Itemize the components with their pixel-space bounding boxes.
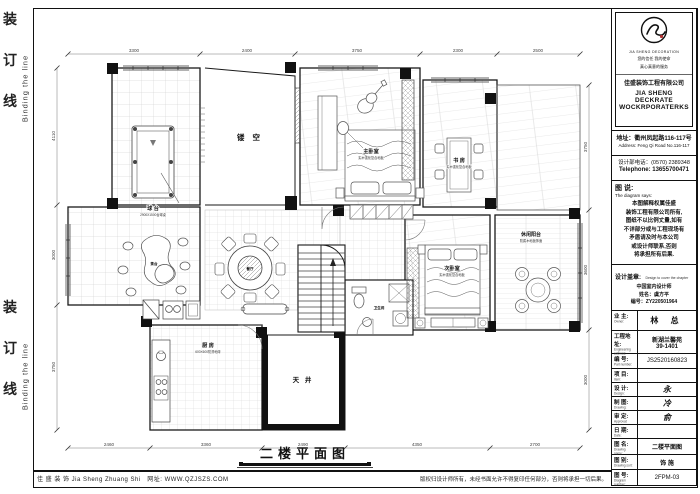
stairs [298, 245, 345, 332]
owner-value: 林 总 [638, 311, 696, 330]
address-en: Address: Feng Qi Road No.116-117 [612, 143, 696, 148]
svg-text:2300: 2300 [453, 48, 464, 53]
binding-label-en: Binding the line [21, 19, 30, 159]
item-value [638, 369, 696, 382]
address-cn: 地址：衢州凤起路116-117号 [612, 133, 696, 142]
project-address-value: 新湖兰馨苑 [652, 335, 682, 344]
room-label-courtyard: 天 井 [293, 375, 314, 384]
title-underline [243, 463, 367, 466]
row-drawing-name: 图 名:Drawing name: 二楼平面图 [612, 439, 696, 455]
room-label-void: 镂 空 [237, 132, 263, 142]
svg-text:2460: 2460 [104, 442, 115, 447]
svg-text:600X600防滑地砖: 600X600防滑地砖 [195, 349, 221, 354]
row-project-address: 工程地址:Engineering address: 新湖兰馨苑 39-1401 [612, 331, 696, 354]
room-label-study: 书 房 [453, 156, 465, 164]
seal-title: 设计盖章: [615, 275, 641, 281]
svg-text:3000: 3000 [583, 374, 588, 385]
plan-title: 二楼平面图 [235, 443, 375, 468]
logo-caption: JIA SHENG DECORATION [616, 50, 692, 54]
seal-title-en: Design to cover the chapter [645, 276, 688, 280]
binding-char: 订 [3, 341, 17, 355]
svg-text:2900X1500台球桌: 2900X1500台球桌 [140, 212, 167, 217]
svg-text:实木强化复合地板: 实木强化复合地板 [439, 272, 465, 277]
wardrobe [402, 80, 414, 180]
footer-strip: 佳 盛 装 饰 Jia Sheng Zhuang Shi 网址: WWW.QZJ… [33, 470, 611, 486]
title-block: JIA SHENG DECORATION 您的信任 我的使命 真心真意的服务 佳… [611, 8, 697, 486]
company-logo-icon [639, 15, 669, 45]
svg-text:4110: 4110 [51, 131, 56, 141]
billiard-table [132, 126, 179, 203]
svg-text:3750: 3750 [51, 361, 56, 372]
footer-company: 佳 盛 装 饰 Jia Sheng Zhuang Shi [37, 477, 141, 483]
drawing-name-value: 二楼平面图 [638, 439, 696, 454]
binding-char: 订 [3, 53, 17, 67]
room-label-dining: 餐厅 [245, 266, 254, 271]
plan-title-text: 二楼平面图 [235, 443, 375, 462]
svg-text:3750: 3750 [352, 48, 363, 53]
drawing-sort-value: 饰 施 [638, 455, 696, 469]
footer-website: 网址: WWW.QZJSZS.COM [147, 477, 228, 483]
svg-text:2500: 2500 [533, 48, 544, 53]
phone-en: Telephone: 13655700471 [612, 167, 696, 173]
svg-text:实木强化复合地板: 实木强化复合地板 [446, 164, 472, 169]
bar-counter [143, 300, 200, 319]
drawing-sheet: 装 订 线 Binding the line 装 订 线 Binding the… [0, 0, 700, 494]
row-approval: 审 定:Approval: 俞 [612, 411, 696, 425]
binding-strip-bottom: 装 订 线 Binding the line [3, 300, 33, 450]
notes-title: 图 说: [615, 183, 693, 193]
company-name-cn: 佳盛装饰工程有限公司 [616, 74, 692, 87]
row-design: 设 计:Design: 永 [612, 383, 696, 397]
corridor-cabinet [350, 205, 413, 219]
binding-char: 装 [3, 300, 17, 314]
binding-char: 线 [3, 94, 17, 108]
row-drawing-number: 图 号:Diagram number: 2FPM-03 [612, 470, 696, 485]
svg-text:2400: 2400 [242, 48, 253, 53]
room-label-second-bedroom: 次卧室 [444, 264, 460, 272]
address-section: 地址：衢州凤起路116-117号 Address: Feng Qi Road N… [612, 131, 696, 156]
svg-text:3750: 3750 [583, 141, 588, 152]
room-label-master-bedroom: 主卧室 [363, 147, 379, 155]
svg-text:3000: 3000 [51, 249, 56, 260]
room-label-billiard: 球 台 [147, 204, 159, 212]
notes-title-en: The diagram says: [615, 193, 693, 198]
svg-text:3360: 3360 [201, 442, 212, 447]
row-drafting: 制 图:Drawing: 冷 [612, 397, 696, 411]
room-label-kitchen: 厨 房 [202, 341, 214, 349]
company-logo-section: JIA SHENG DECORATION 您的信任 我的使命 真心真意的服务 佳… [612, 9, 696, 131]
binding-strip-top: 装 订 线 Binding the line [3, 12, 33, 162]
room-label-balcony: 休闲阳台 [520, 231, 541, 238]
row-drawing-sort: 图 别:Drawing sort: 饰 施 [612, 455, 696, 470]
floor-plan: 3300 2400 3750 2300 2500 4110 3000 3750 … [33, 8, 611, 470]
svg-text:2700: 2700 [530, 442, 541, 447]
drafting-signature: 冷 [638, 397, 696, 410]
room-label-tea: 茶台 [149, 261, 158, 266]
svg-text:实木强化复合地板: 实木强化复合地板 [358, 155, 384, 160]
logo-slogan-1: 您的信任 我的使命 [616, 56, 692, 62]
project-address-value-2: 39-1401 [656, 344, 678, 350]
drawing-number-value: 2FPM-03 [638, 470, 696, 485]
phone-cn: 设计部电话：(0570) 2389348 [612, 158, 696, 166]
bench [243, 304, 287, 314]
room-label-bath: 卫生间 [374, 305, 385, 310]
diagram-notes-section: 图 说: The diagram says: 本图解释权属佳盛 装饰工程有限公司… [612, 181, 696, 265]
binding-char: 线 [3, 382, 17, 396]
date-value [638, 425, 696, 438]
approval-signature: 俞 [638, 411, 696, 424]
row-owner: 业 主:Owner: 林 总 [612, 311, 696, 331]
row-item: 项 目:Item: [612, 369, 696, 383]
binding-char: 装 [3, 12, 17, 26]
svg-text:4350: 4350 [412, 442, 423, 447]
footer-copyright: 版权归设计师所有，未经书面允许不得复印任何部分，否则将承担一切后果。 [420, 475, 607, 483]
row-date: 日 期:Date: [612, 425, 696, 439]
design-signature: 永 [638, 383, 696, 396]
svg-text:3300: 3300 [129, 48, 140, 53]
design-seal-section: 设计盖章: Design to cover the chapter 中国室内设计… [612, 265, 696, 311]
number-value: JS2520160823 [638, 354, 696, 368]
svg-text:防腐木地板饰面: 防腐木地板饰面 [520, 238, 542, 243]
company-name-en-2: WOCKRPORATERKS [616, 104, 692, 111]
binding-label-en: Binding the line [21, 307, 30, 447]
company-name-en-1: JIA SHENG DECKRATE [616, 90, 692, 104]
row-number: 编 号:Part number: JS2520160823 [612, 354, 696, 369]
kitchen-counter [152, 340, 170, 422]
logo-slogan-2: 真心真意的服务 [616, 64, 692, 70]
svg-text:3600: 3600 [583, 264, 588, 275]
phone-section: 设计部电话：(0570) 2389348 Telephone: 13655700… [612, 156, 696, 181]
